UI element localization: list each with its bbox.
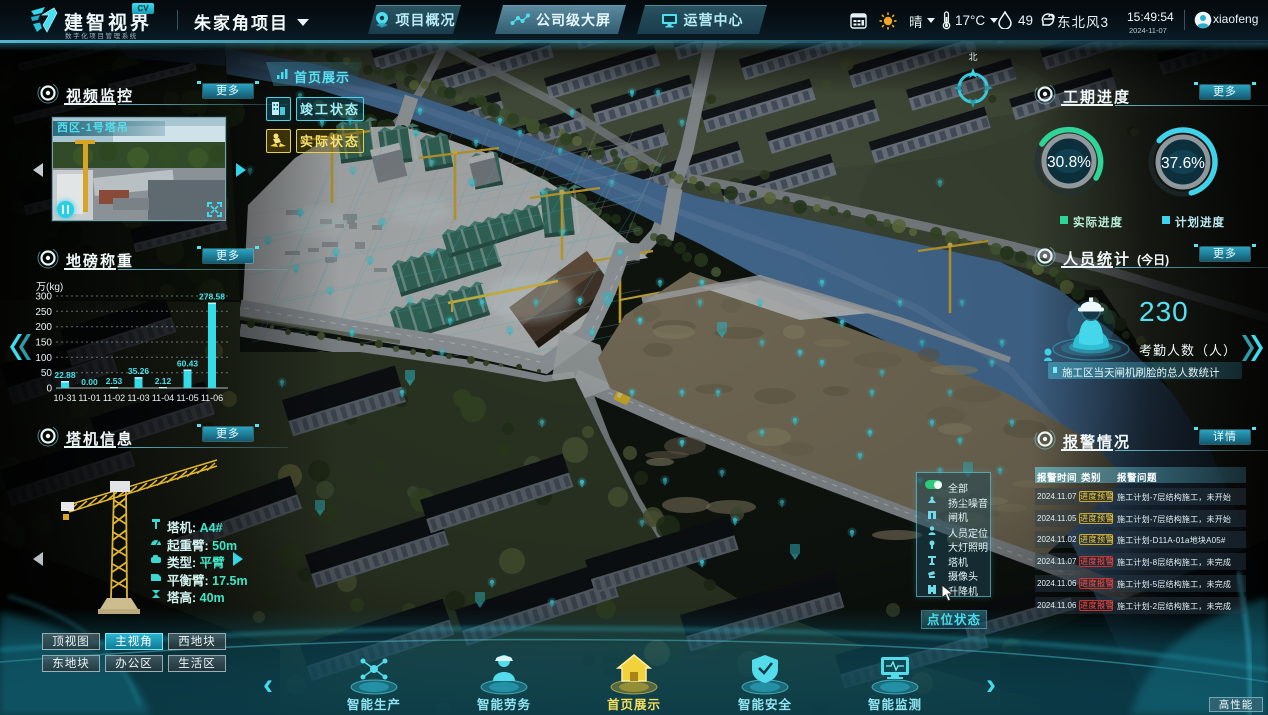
svg-text:50: 50 [41, 368, 53, 379]
svg-text:22.88: 22.88 [54, 370, 76, 380]
svg-text:30.8%: 30.8% [1047, 154, 1091, 171]
svg-text:11-02: 11-02 [103, 393, 125, 403]
svg-text:北: 北 [968, 52, 977, 62]
svg-text:0.00: 0.00 [81, 377, 98, 387]
svg-text:200: 200 [35, 322, 52, 333]
svg-text:11-04: 11-04 [152, 393, 174, 403]
svg-text:250: 250 [35, 307, 52, 318]
svg-text:35.26: 35.26 [128, 366, 150, 376]
svg-text:11-01: 11-01 [78, 393, 100, 403]
svg-text:11-05: 11-05 [176, 393, 198, 403]
svg-text:100: 100 [35, 353, 52, 364]
svg-text:2.12: 2.12 [155, 376, 172, 386]
svg-text:11-03: 11-03 [127, 393, 149, 403]
svg-text:150: 150 [35, 338, 52, 349]
svg-text:300: 300 [35, 292, 52, 303]
svg-text:60.43: 60.43 [177, 359, 199, 369]
svg-text:278.58: 278.58 [199, 292, 225, 302]
svg-text:37.6%: 37.6% [1161, 155, 1205, 172]
svg-text:2.53: 2.53 [106, 376, 123, 386]
svg-text:10-31: 10-31 [53, 393, 76, 403]
svg-text:11-06: 11-06 [201, 393, 223, 403]
svg-text:0: 0 [46, 384, 52, 395]
